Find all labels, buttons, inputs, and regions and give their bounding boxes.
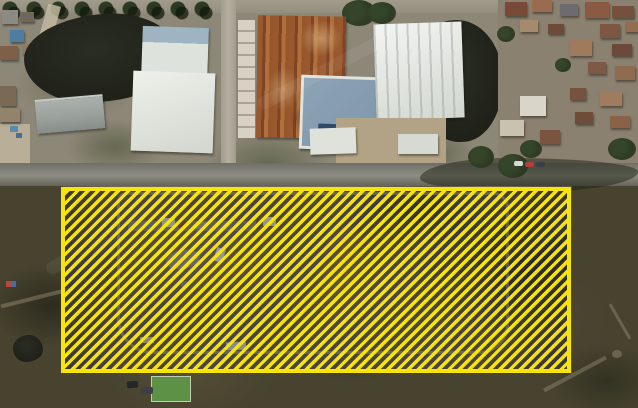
tree-clump (497, 26, 515, 42)
house-roof (548, 24, 564, 34)
house-roof (612, 44, 632, 56)
map-viewport[interactable] (0, 0, 638, 408)
house-roof (615, 66, 635, 80)
light-spot (612, 350, 622, 358)
parked-car (514, 161, 523, 166)
parked-car (525, 162, 534, 167)
blue-debris (10, 126, 18, 132)
house-roof (575, 112, 593, 124)
building-roof-blue (10, 30, 24, 42)
tree-clump (520, 140, 542, 158)
house-roof (600, 24, 620, 38)
building-roof (0, 46, 18, 60)
low-white-roof (310, 127, 357, 155)
house-roof (610, 116, 630, 128)
house-roof-light (520, 96, 546, 116)
building-roof (0, 108, 20, 122)
tree-clump (555, 58, 571, 72)
low-white-roof (398, 134, 438, 154)
house-roof (612, 6, 634, 18)
highlight-overlay[interactable] (61, 187, 571, 373)
house-roof (532, 0, 552, 12)
house-roof (570, 88, 586, 100)
gray-warehouse-roof (35, 94, 106, 134)
tree-clump (498, 154, 528, 178)
house-roof (560, 4, 578, 16)
white-warehouse-roof (131, 71, 216, 154)
segmented-building-roof (238, 20, 255, 138)
tree-clump (608, 138, 636, 160)
blue-debris (16, 133, 22, 138)
tiny-vehicle (6, 281, 16, 287)
building-roof (20, 12, 34, 22)
tree-clump (368, 2, 396, 24)
house-roof (625, 22, 638, 32)
side-road (221, 0, 236, 170)
house-roof (588, 62, 606, 74)
house-roof (600, 92, 622, 106)
small-pond (13, 335, 43, 362)
building-roof (0, 86, 16, 106)
house-roof-light (500, 120, 524, 136)
building-roof (2, 10, 18, 24)
house-roof (540, 130, 560, 144)
tree-clump (468, 146, 494, 168)
parked-car (141, 387, 153, 394)
house-roof (505, 2, 527, 16)
house-roof (520, 20, 538, 32)
house-roof (570, 40, 592, 56)
sports-green-plot (151, 376, 191, 402)
parked-car (536, 162, 545, 167)
house-roof (585, 2, 609, 18)
parked-car (127, 381, 139, 389)
